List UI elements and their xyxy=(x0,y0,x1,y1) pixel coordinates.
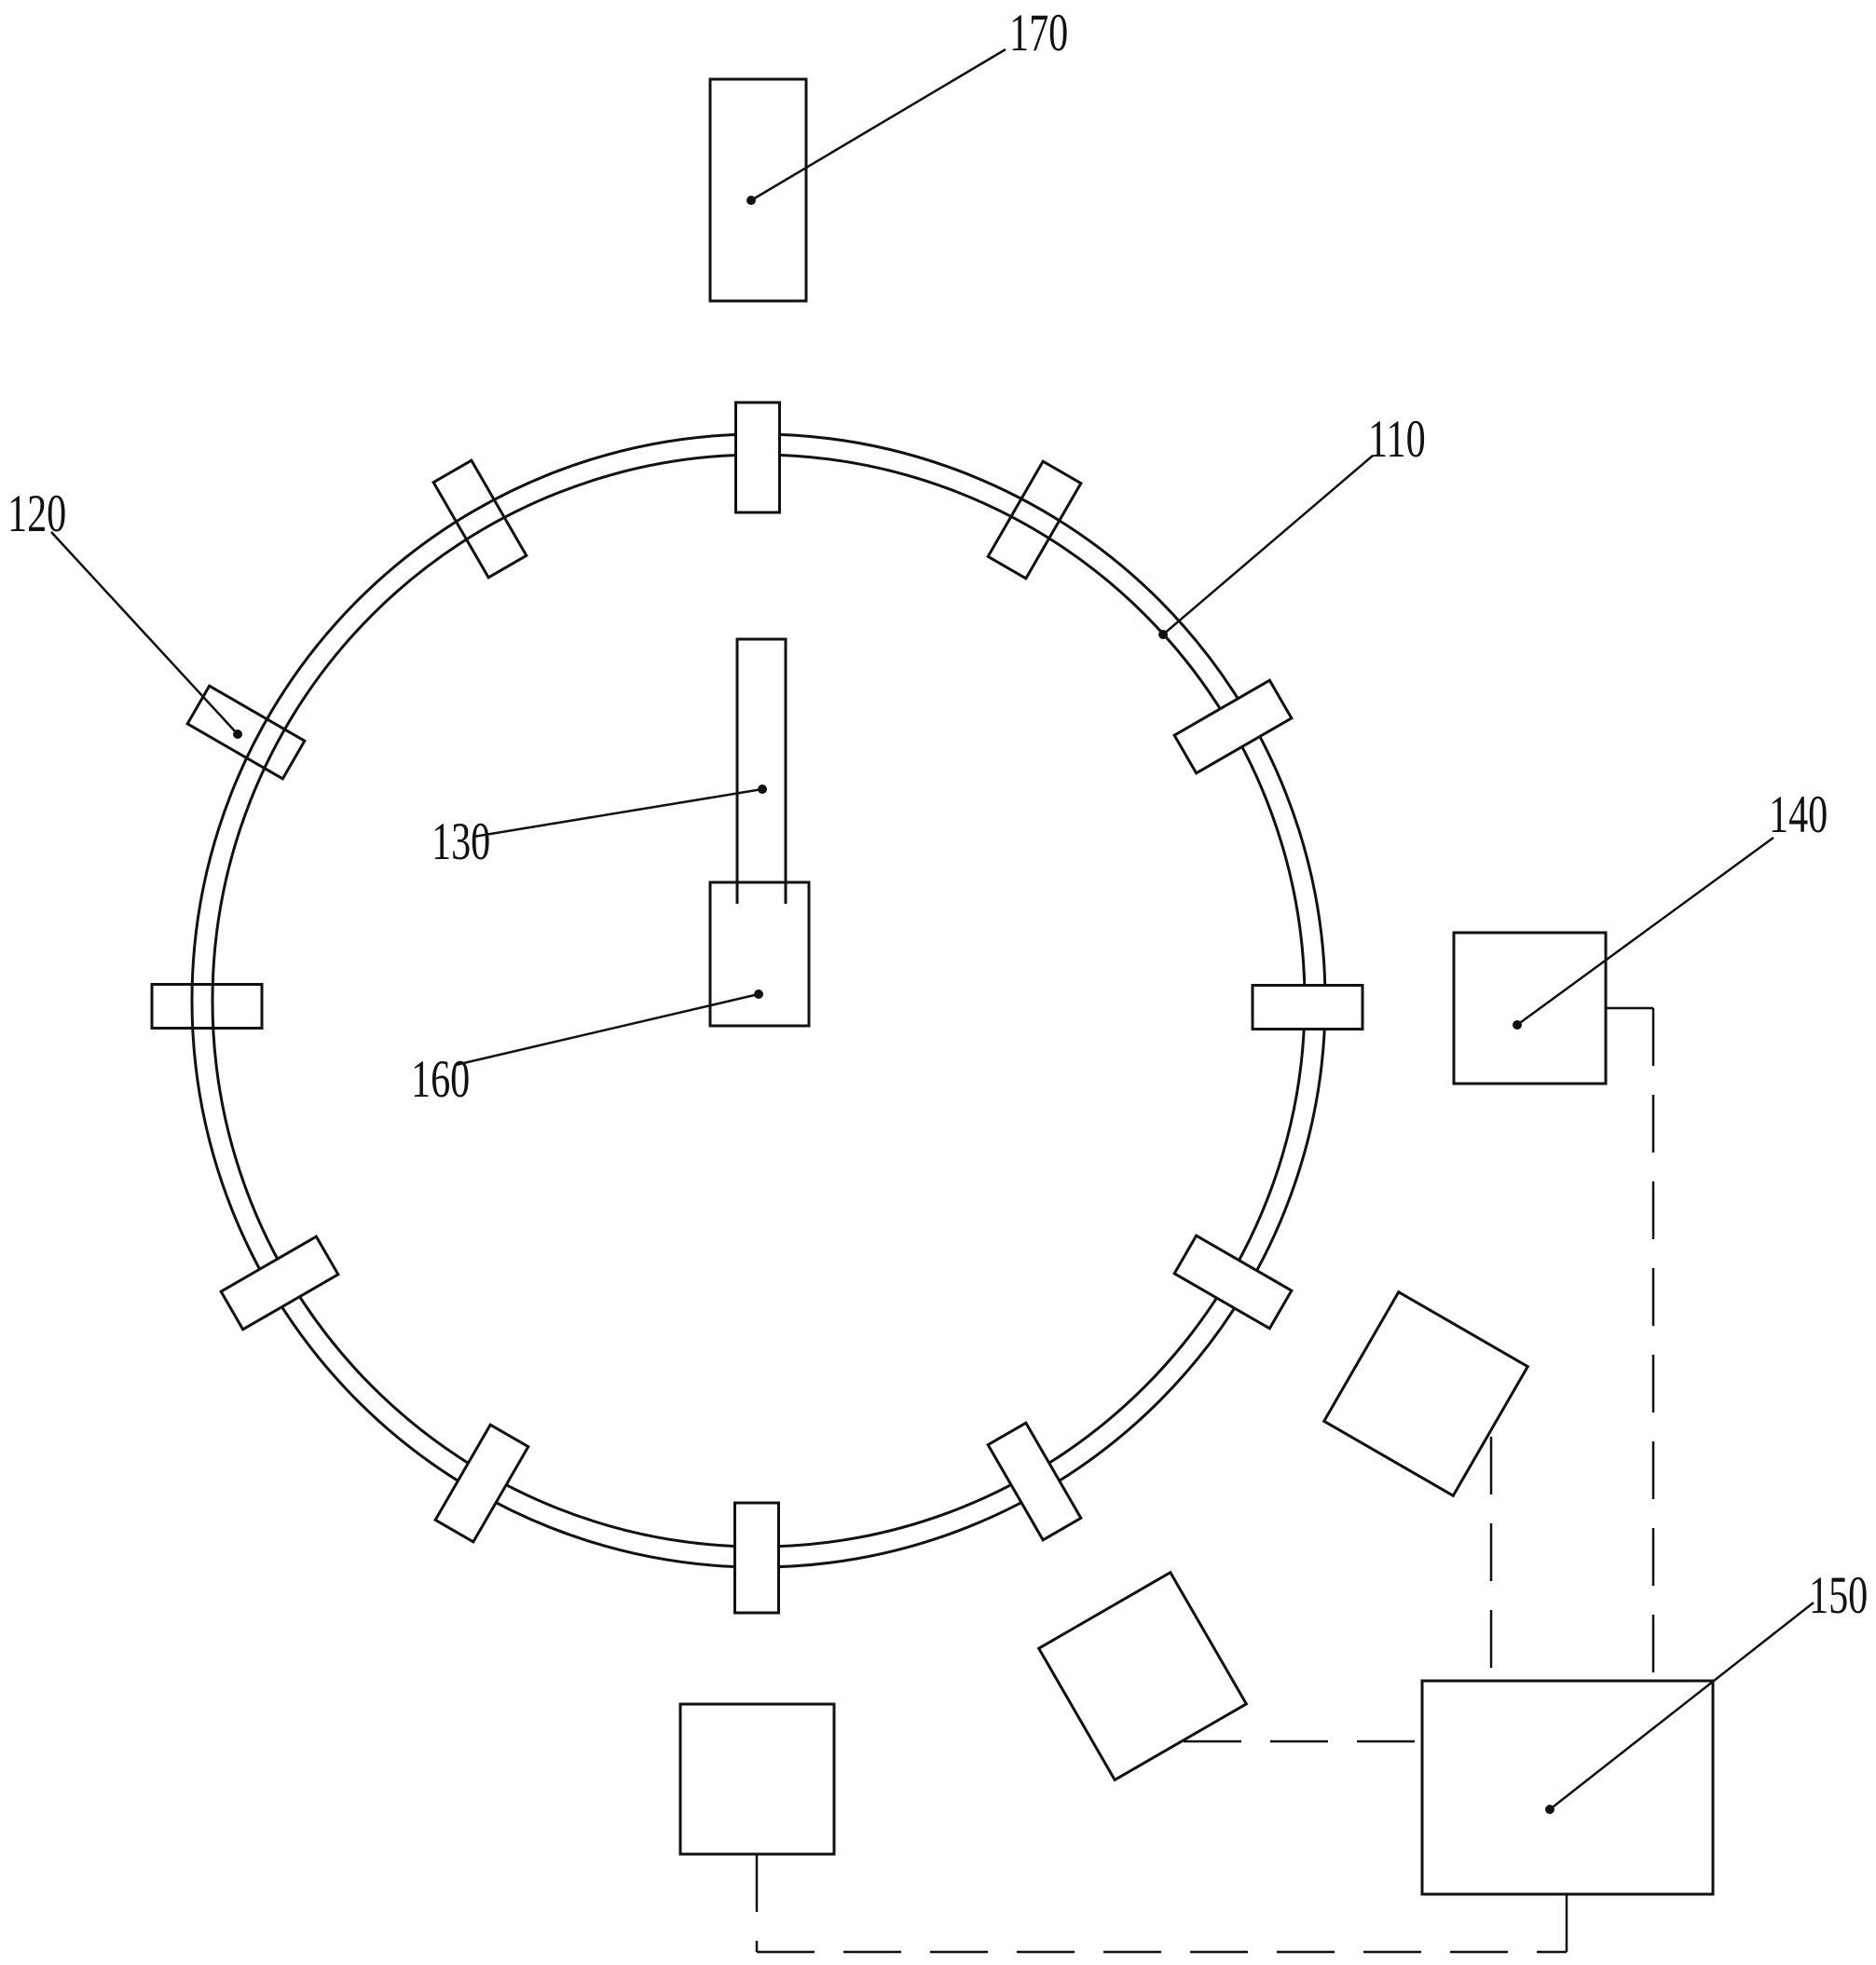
ref-label-150: 150 xyxy=(1809,1569,1868,1622)
mount-block-7-oclock xyxy=(435,1425,528,1542)
tilted-square-upper xyxy=(1324,1292,1528,1496)
leader-line-130 xyxy=(473,789,762,837)
center-block xyxy=(710,882,809,1026)
leader-dot-110 xyxy=(1158,630,1168,639)
diagram-drawing xyxy=(0,0,1876,1965)
leader-line-150 xyxy=(1550,1603,1814,1809)
center-bar xyxy=(737,639,786,904)
mount-block-4-oclock xyxy=(1174,1235,1292,1329)
leader-dot-120 xyxy=(233,730,242,739)
ref-label-170: 170 xyxy=(1009,7,1068,60)
leader-dot-170 xyxy=(746,196,756,205)
ref-label-160: 160 xyxy=(411,1053,470,1106)
ring-outer-circle xyxy=(192,434,1325,1567)
ring-mount-blocks xyxy=(152,403,1362,1613)
leader-line-170 xyxy=(751,49,1006,200)
ref-label-130: 130 xyxy=(431,815,490,868)
mount-block-5-oclock xyxy=(988,1423,1081,1540)
leader-lines xyxy=(51,49,1814,1809)
bottom-box xyxy=(680,1704,834,1854)
leader-line-120 xyxy=(51,532,238,734)
top-box xyxy=(710,79,806,301)
tilted-square-lower xyxy=(1039,1573,1247,1781)
ring xyxy=(192,434,1325,1567)
mount-block-9-oclock xyxy=(152,985,262,1029)
mount-block-1-oclock xyxy=(988,461,1081,579)
figure-canvas: 110 120 130 140 150 160 170 xyxy=(0,0,1876,1965)
mount-block-8-oclock xyxy=(221,1236,338,1330)
leader-line-110 xyxy=(1163,456,1373,635)
mount-block-2-oclock xyxy=(1174,680,1292,773)
ring-inner-circle xyxy=(212,455,1305,1547)
leader-dot-150 xyxy=(1545,1805,1554,1814)
mount-block-3-oclock xyxy=(1253,986,1362,1030)
ref-label-120: 120 xyxy=(7,487,66,540)
mount-block-11-oclock xyxy=(433,460,527,578)
ref-label-140: 140 xyxy=(1769,788,1828,841)
mount-block-12-oclock xyxy=(736,403,780,512)
leader-dot-160 xyxy=(754,989,763,999)
leader-dot-140 xyxy=(1513,1020,1522,1030)
connector-lines xyxy=(757,1008,1653,1952)
controller-box xyxy=(1422,1681,1713,1894)
mount-block-6-oclock xyxy=(735,1503,779,1613)
leader-dot-130 xyxy=(758,785,767,794)
right-box xyxy=(1454,933,1606,1084)
leader-line-160 xyxy=(456,994,759,1065)
ref-label-110: 110 xyxy=(1368,413,1426,466)
